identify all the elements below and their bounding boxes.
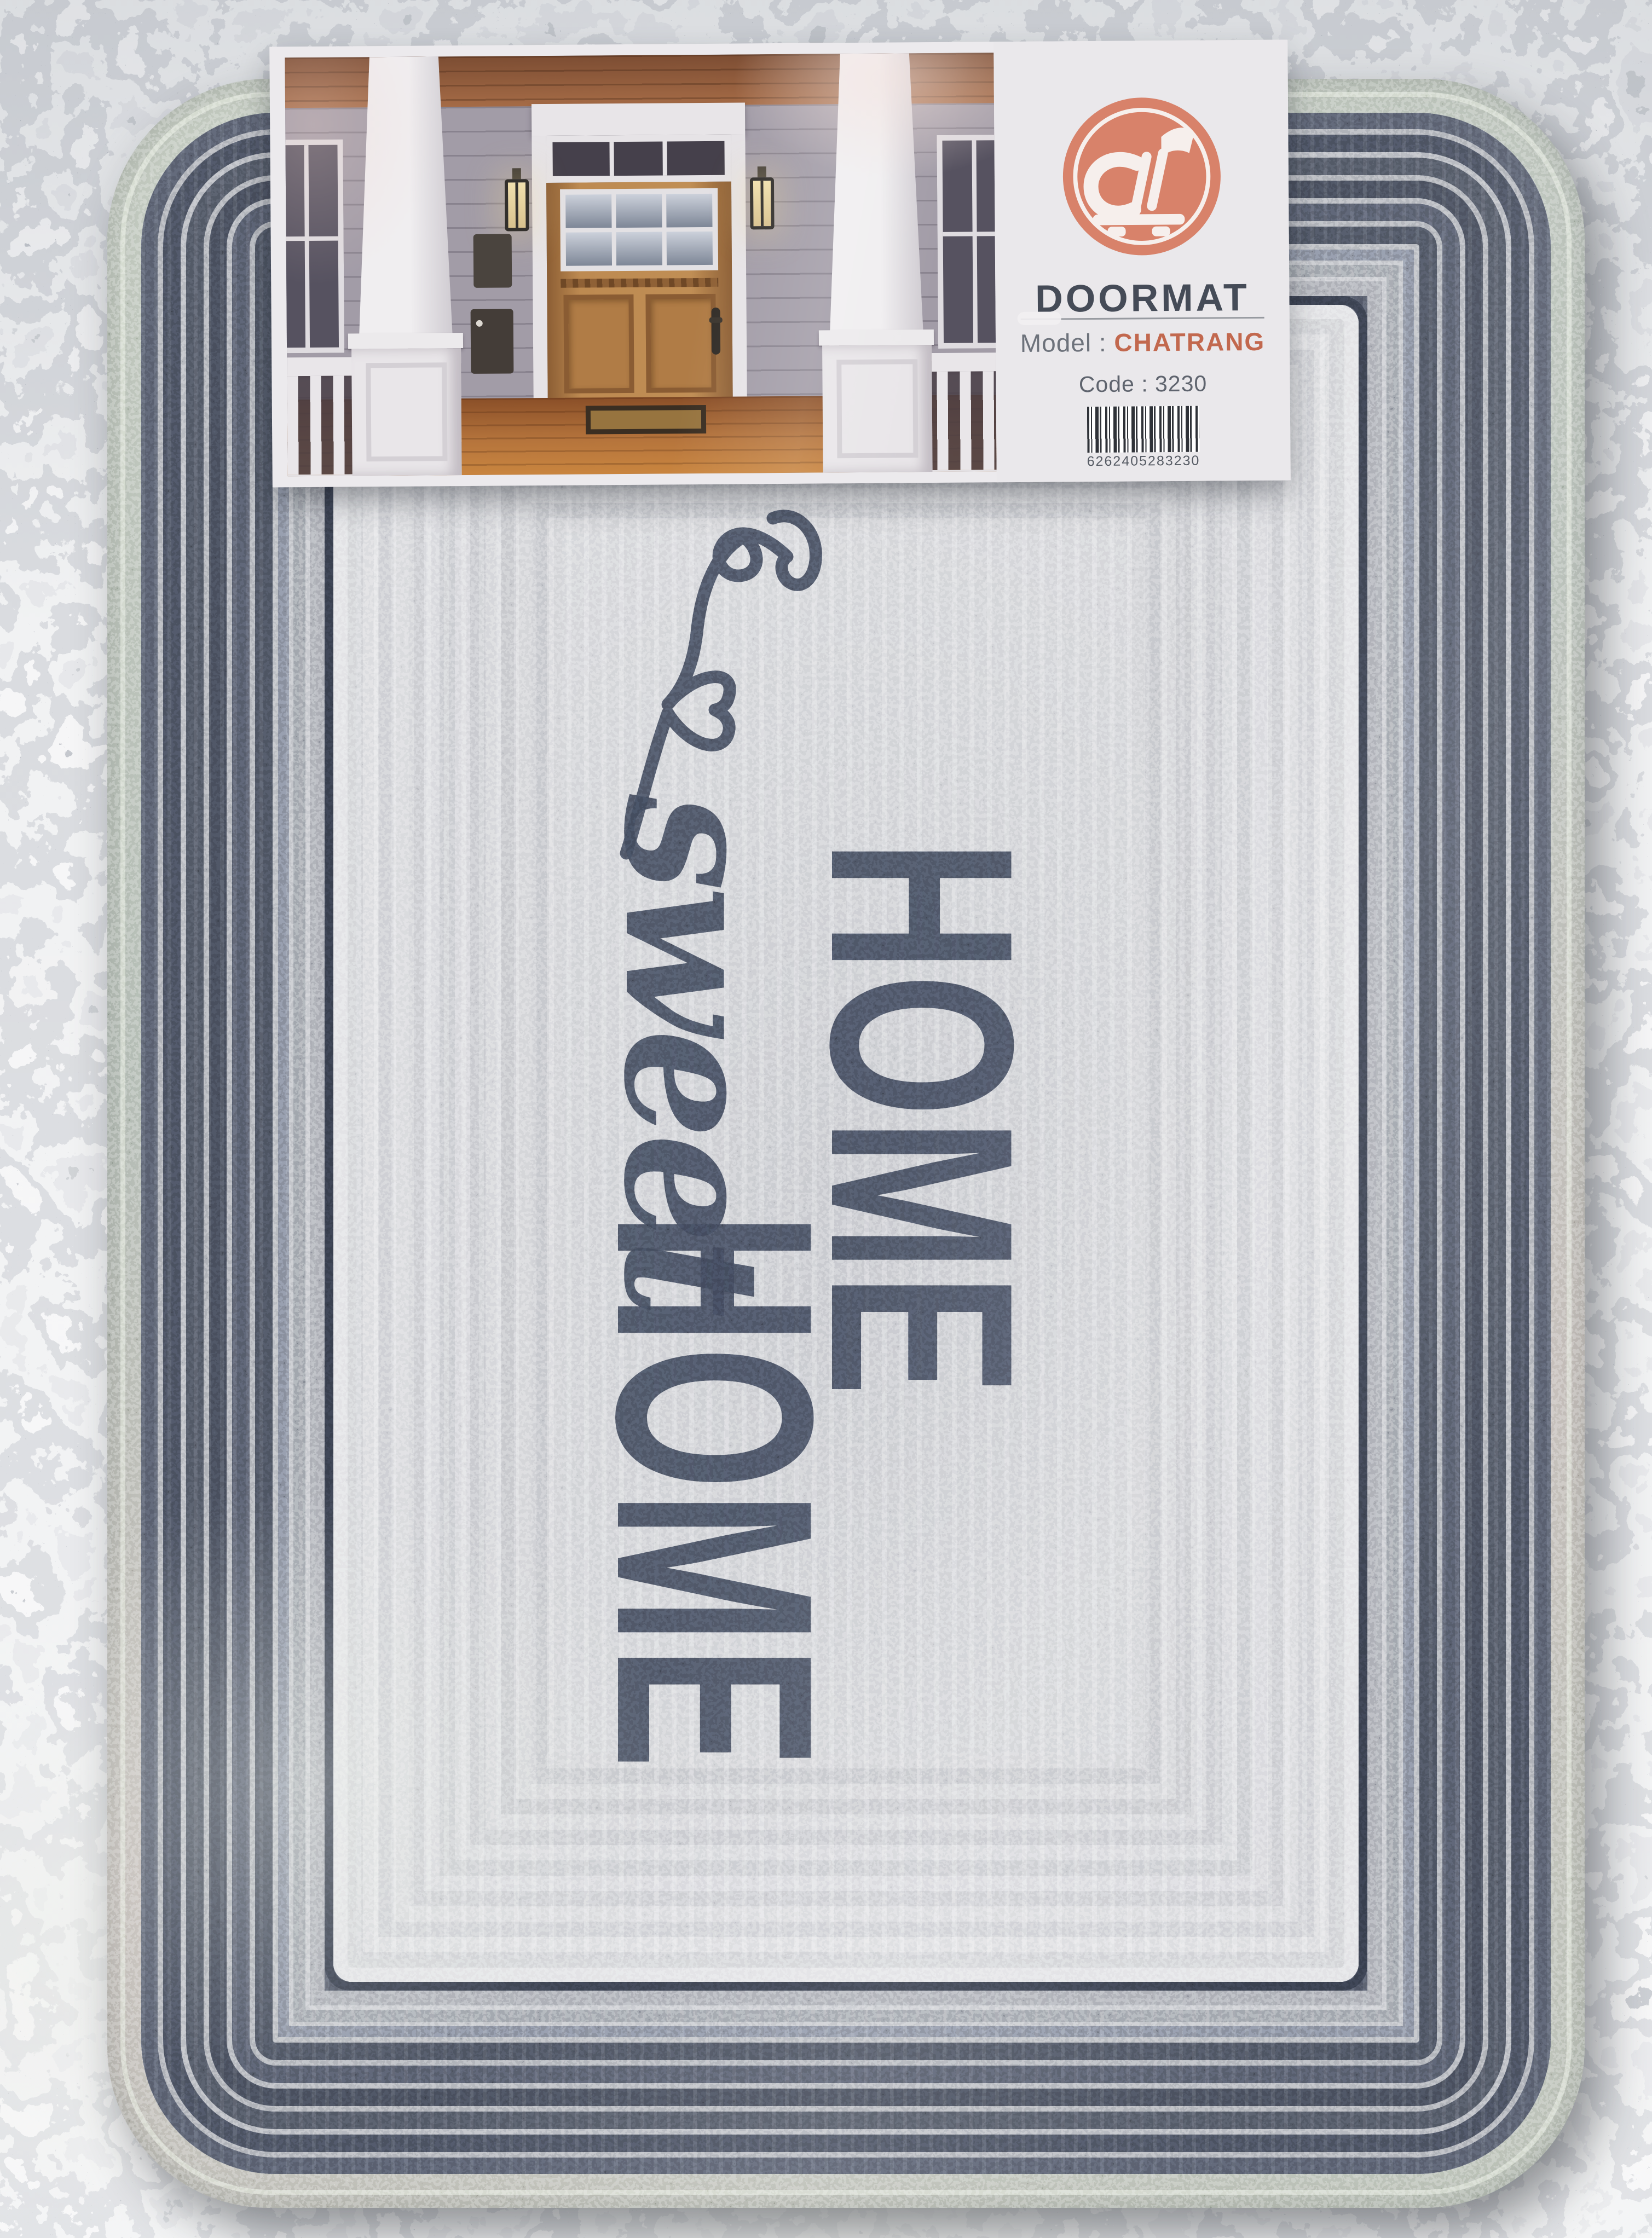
- wall-sconce-right: [749, 166, 776, 238]
- shopping-cart-logo-icon: [1059, 94, 1224, 259]
- transom-window: [546, 135, 731, 183]
- mat-printed-design: sweet HOME HOME: [342, 314, 1350, 1973]
- packaging-label-card: DOORMAT Model : CHATRANG Code : 3230 626…: [269, 40, 1291, 488]
- door-side-trim-right: [731, 134, 747, 410]
- porch-lifestyle-photo: [285, 53, 996, 476]
- column-pedestal-left: [351, 348, 462, 476]
- wall-mailbox-panel: [473, 234, 512, 287]
- model-line: Model : CHATRANG: [996, 327, 1290, 358]
- barcode-digits: 6262405283230: [996, 452, 1290, 470]
- product-photo-scene: sweet HOME HOME: [0, 0, 1652, 2238]
- model-label: Model :: [1020, 328, 1107, 357]
- rotated-text-block: sweet HOME HOME: [342, 314, 1350, 1973]
- door-panel: [645, 294, 716, 393]
- small-doormat-in-photo: [586, 405, 706, 435]
- door-handle: [712, 308, 721, 355]
- porch-column-right: [827, 53, 925, 360]
- code-line: Code : 3230: [996, 371, 1290, 398]
- wall-sconce-left: [504, 168, 530, 239]
- door-header-trim: [532, 102, 745, 136]
- wall-keypad-panel: [471, 309, 514, 374]
- right-window: [937, 135, 996, 349]
- door-side-trim-left: [532, 136, 548, 412]
- column-pedestal-right: [822, 345, 933, 472]
- door-window-lites: [560, 188, 718, 271]
- left-window: [285, 140, 344, 354]
- front-door: [546, 182, 733, 413]
- label-info-column: DOORMAT Model : CHATRANG Code : 3230 626…: [993, 40, 1291, 483]
- mat-word-home-bottom: HOME: [575, 1212, 855, 1769]
- column-capital-right: [819, 329, 934, 345]
- door-panel: [563, 294, 634, 394]
- barcode: [1087, 406, 1200, 453]
- porch-column-left: [356, 56, 454, 363]
- column-capital-left: [348, 333, 463, 349]
- door-dentil-shelf: [561, 278, 718, 288]
- model-value: CHATRANG: [1114, 327, 1265, 357]
